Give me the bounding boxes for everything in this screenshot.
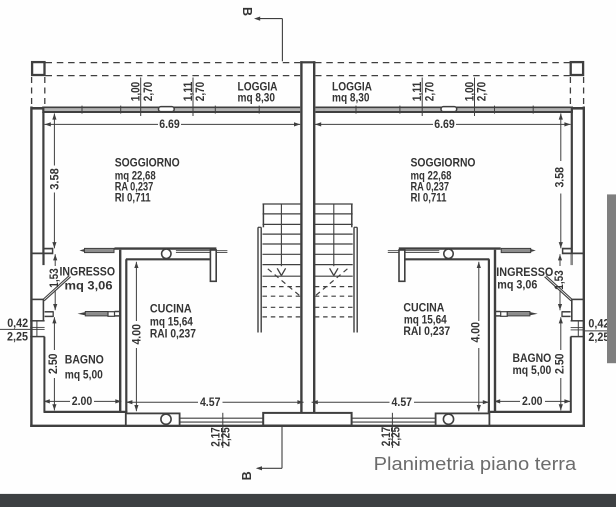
- svg-text:4.00: 4.00: [129, 324, 143, 345]
- svg-text:2.00: 2.00: [72, 394, 93, 408]
- svg-text:mq 8,30: mq 8,30: [238, 90, 276, 104]
- svg-text:4.57: 4.57: [200, 395, 221, 409]
- svg-text:Planimetria piano terra: Planimetria piano terra: [374, 454, 578, 474]
- svg-text:6.69: 6.69: [434, 117, 455, 131]
- svg-text:mq 3,06: mq 3,06: [497, 278, 537, 292]
- svg-text:B: B: [240, 471, 254, 480]
- svg-text:0,42: 0,42: [588, 317, 609, 331]
- svg-text:RI 0,711: RI 0,711: [115, 191, 151, 205]
- svg-text:mq 5,00: mq 5,00: [65, 368, 103, 382]
- svg-text:2.00: 2.00: [522, 394, 543, 408]
- svg-text:mq 5,00: mq 5,00: [513, 363, 552, 377]
- svg-text:B: B: [240, 7, 254, 16]
- svg-text:2,25: 2,25: [219, 427, 233, 447]
- svg-text:2,25: 2,25: [7, 329, 28, 343]
- svg-text:2.50: 2.50: [553, 353, 567, 374]
- svg-text:6.69: 6.69: [159, 117, 180, 131]
- svg-text:mq 3,06: mq 3,06: [65, 279, 113, 293]
- svg-text:3.58: 3.58: [553, 167, 567, 188]
- svg-text:RAI 0,237: RAI 0,237: [150, 327, 196, 341]
- svg-text:2.50: 2.50: [46, 353, 60, 374]
- svg-text:2,25: 2,25: [389, 426, 403, 446]
- svg-text:RI 0,711: RI 0,711: [411, 191, 447, 205]
- svg-text:SOGGIORNO: SOGGIORNO: [411, 155, 476, 169]
- svg-text:2,70: 2,70: [422, 81, 436, 101]
- svg-text:INGRESSO: INGRESSO: [60, 265, 116, 279]
- svg-text:2,70: 2,70: [193, 81, 207, 101]
- svg-text:BAGNO: BAGNO: [65, 353, 104, 367]
- svg-text:mq 8,30: mq 8,30: [332, 90, 370, 104]
- svg-text:2,25: 2,25: [588, 330, 609, 344]
- svg-text:4.57: 4.57: [392, 395, 413, 409]
- svg-text:SOGGIORNO: SOGGIORNO: [115, 155, 180, 169]
- svg-text:RAI 0,237: RAI 0,237: [403, 324, 450, 338]
- svg-text:2,70: 2,70: [475, 81, 489, 101]
- svg-text:3.58: 3.58: [47, 168, 61, 190]
- svg-text:1,53: 1,53: [552, 270, 566, 290]
- svg-text:4.00: 4.00: [468, 322, 482, 343]
- svg-text:0,42: 0,42: [7, 316, 28, 330]
- svg-text:2,70: 2,70: [141, 81, 155, 101]
